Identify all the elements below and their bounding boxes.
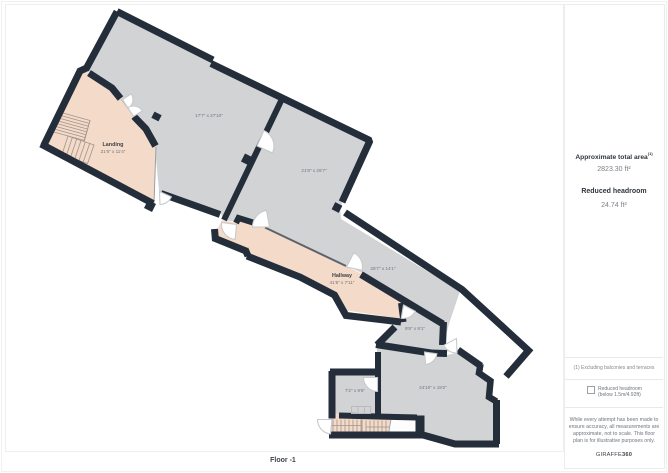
svg-text:24′10″ x 19′2″: 24′10″ x 19′2″ [419, 385, 447, 390]
svg-text:17′7″ x 27′10″: 17′7″ x 27′10″ [195, 113, 223, 118]
svg-text:7′2″ x 9′6″: 7′2″ x 9′6″ [345, 388, 365, 393]
svg-text:25′7″ x 14′1″: 25′7″ x 14′1″ [370, 266, 396, 271]
svg-text:9′8″ x 9′1″: 9′8″ x 9′1″ [405, 326, 425, 331]
svg-text:Landing: Landing [103, 142, 124, 148]
svg-text:21′8″ x 26′7″: 21′8″ x 26′7″ [301, 168, 327, 173]
svg-text:Hallway: Hallway [332, 273, 352, 279]
svg-text:41′5″ x 7′11″: 41′5″ x 7′11″ [330, 280, 355, 285]
svg-text:21′6″ x 11′4″: 21′6″ x 11′4″ [101, 149, 126, 154]
